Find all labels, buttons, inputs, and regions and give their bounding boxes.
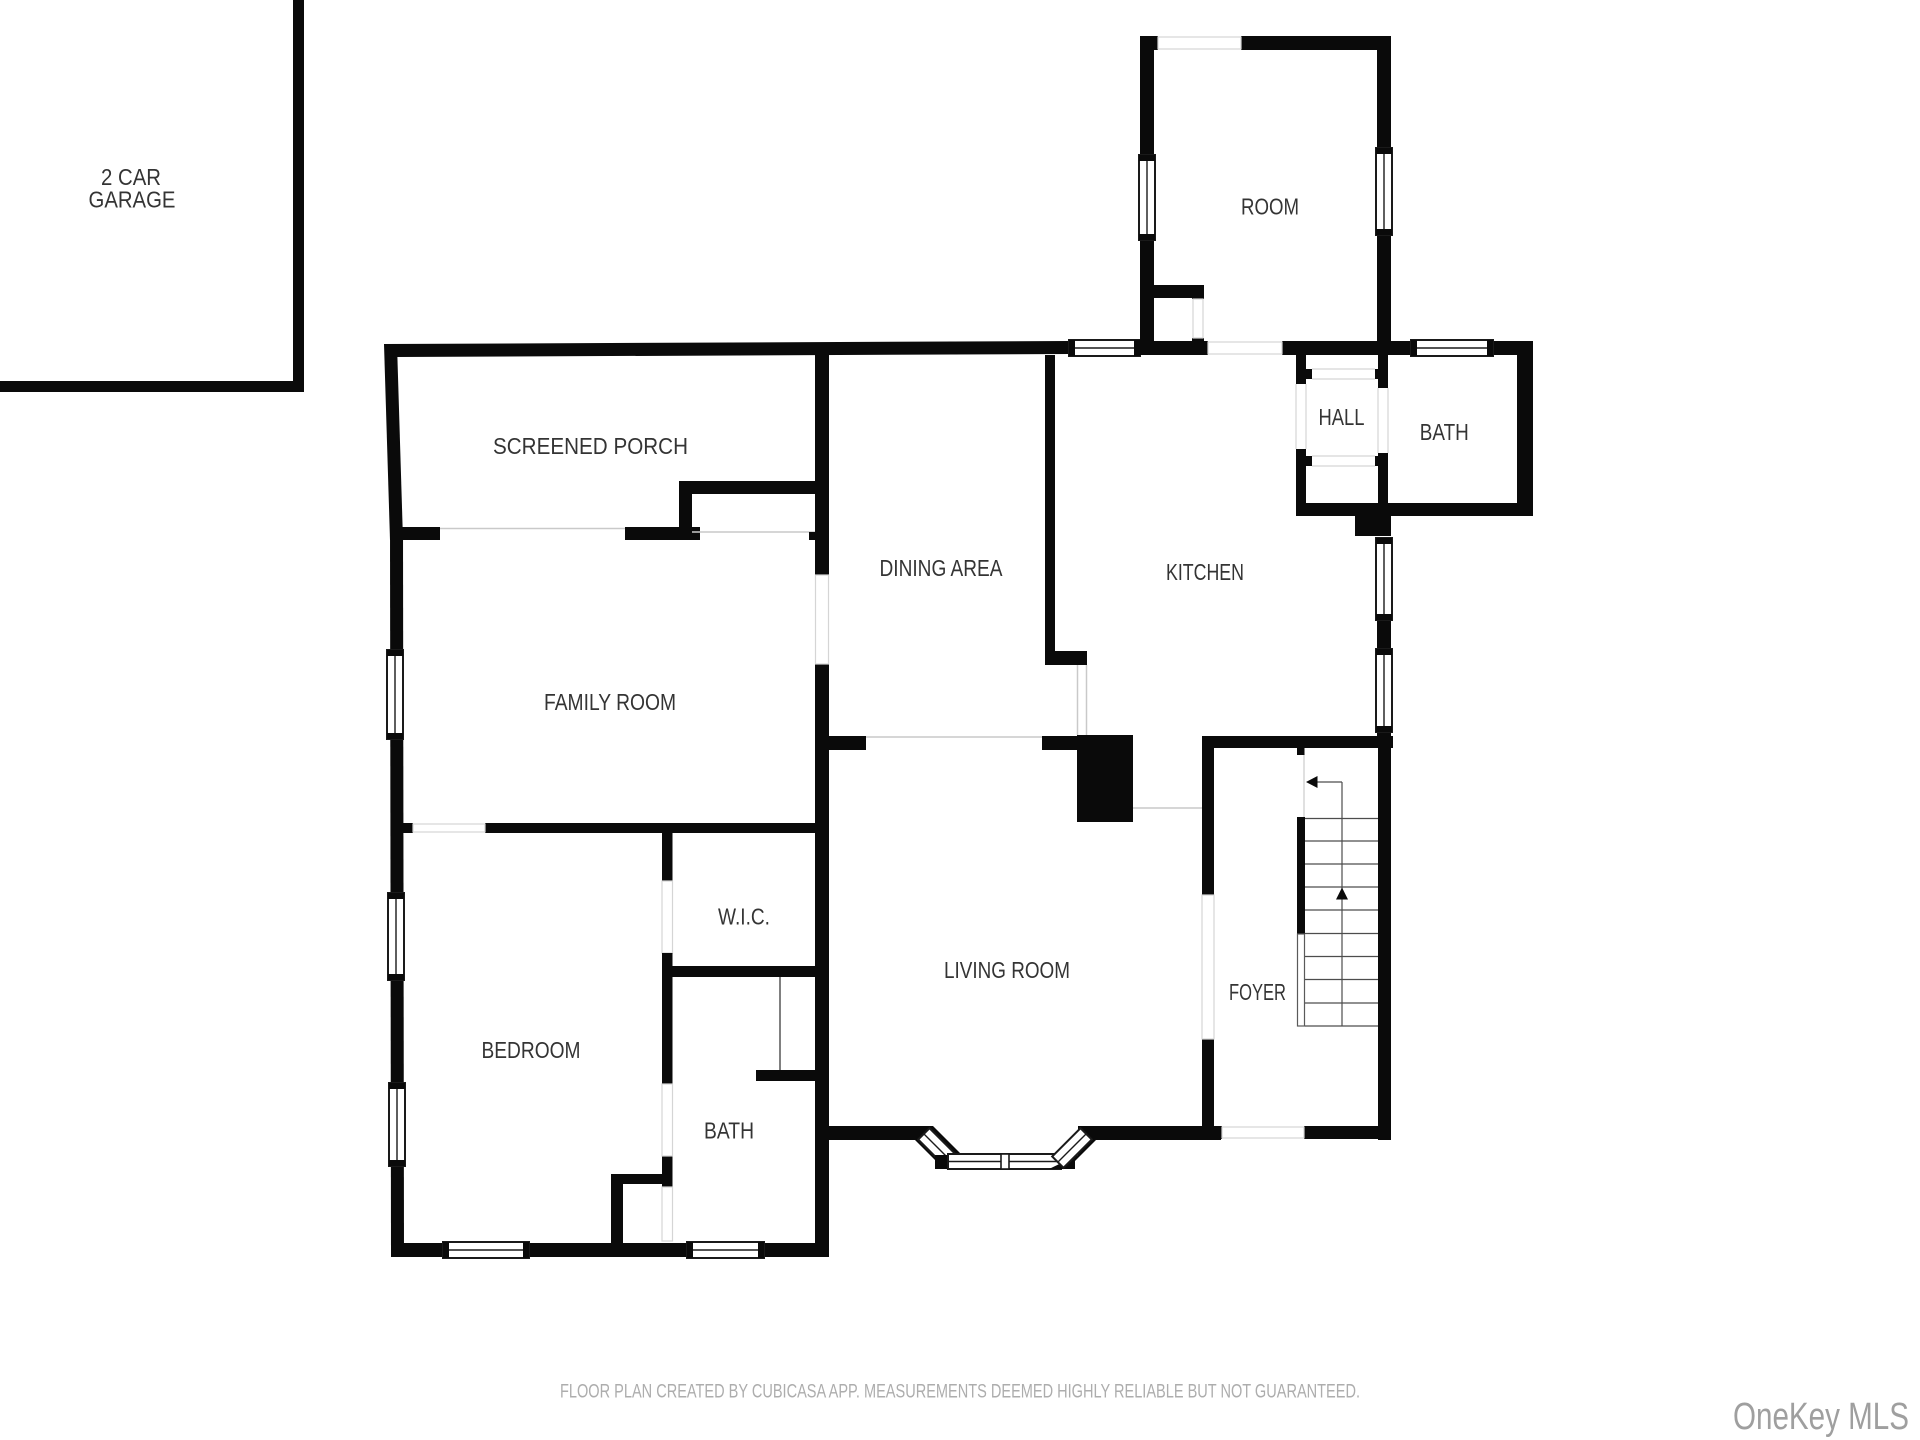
svg-text:GARAGE: GARAGE (89, 187, 176, 213)
svg-text:BEDROOM: BEDROOM (482, 1037, 581, 1063)
svg-text:DINING AREA: DINING AREA (880, 555, 1004, 581)
svg-text:FLOOR PLAN CREATED BY CUBICASA: FLOOR PLAN CREATED BY CUBICASA APP. MEAS… (560, 1381, 1360, 1403)
svg-text:FOYER: FOYER (1229, 979, 1286, 1005)
svg-text:OneKey MLS: OneKey MLS (1733, 1396, 1909, 1438)
svg-text:SCREENED PORCH: SCREENED PORCH (493, 433, 688, 459)
svg-text:BATH: BATH (1420, 419, 1469, 445)
svg-text:FAMILY ROOM: FAMILY ROOM (544, 689, 676, 715)
svg-text:LIVING ROOM: LIVING ROOM (944, 957, 1070, 983)
svg-text:HALL: HALL (1319, 404, 1365, 430)
svg-text:ROOM: ROOM (1241, 194, 1299, 220)
svg-text:BATH: BATH (704, 1118, 754, 1144)
svg-text:KITCHEN: KITCHEN (1166, 559, 1244, 585)
svg-text:W.I.C.: W.I.C. (718, 904, 770, 930)
